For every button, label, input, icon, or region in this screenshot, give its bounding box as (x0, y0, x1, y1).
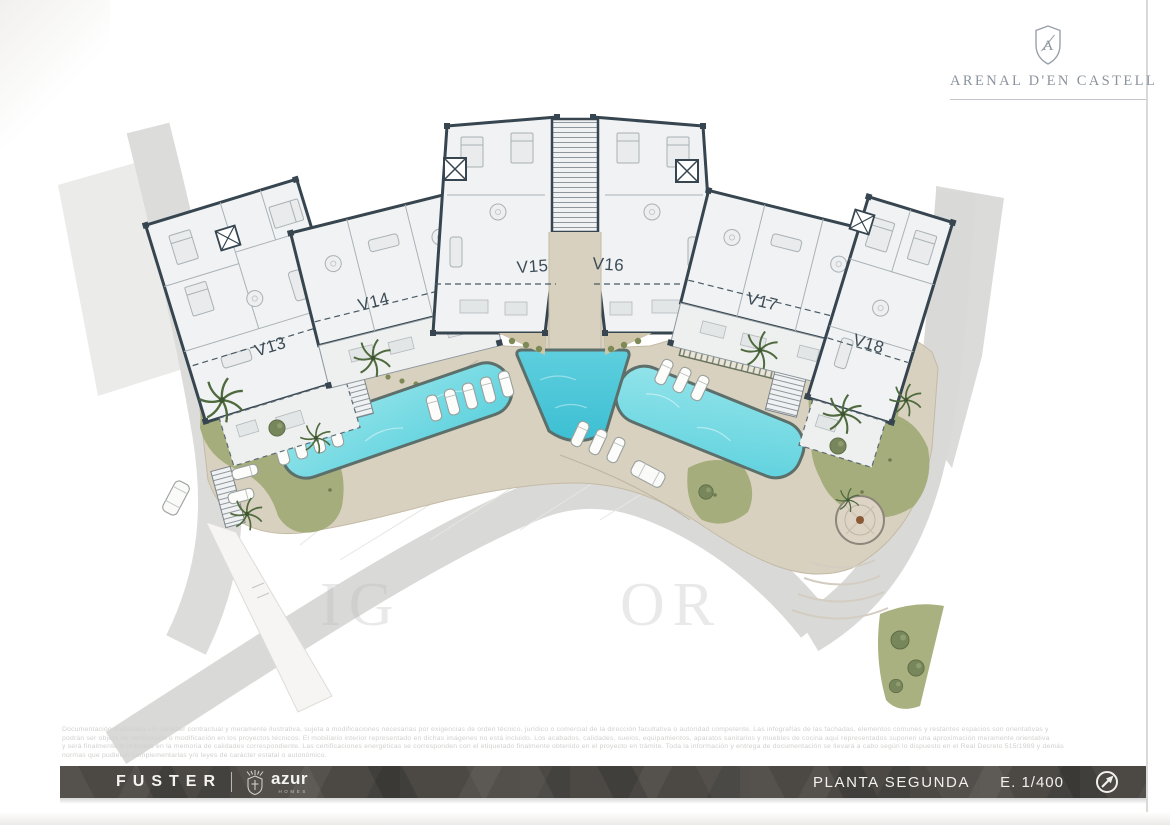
brand-shield-icon: A (1033, 24, 1063, 66)
disclaimer-line: podrán ser objeto de verificación o modi… (62, 735, 1140, 744)
brand-rule (950, 99, 1146, 100)
stair-core (552, 119, 598, 232)
circular-patio (836, 496, 884, 544)
photo-bottom-shade (0, 812, 1170, 825)
brand-monogram: A (1043, 38, 1054, 54)
azur-sub-label: HOMES (271, 789, 308, 794)
photo-edge-line (1146, 0, 1148, 812)
central-corridor (549, 232, 601, 348)
azur-wordmark: azur (271, 770, 308, 787)
unit-label-v15: V15 (516, 256, 549, 277)
brand-header: A ARENAL D'EN CASTELL (950, 24, 1146, 100)
north-compass-icon (1094, 769, 1120, 795)
title-bar: FUSTER azur HOMES PLANTA SEGUNDA E. 1/40… (60, 766, 1146, 798)
unit-label-v16: V16 (592, 254, 625, 275)
legal-disclaimer: Documentación elaborada sin carácter con… (62, 726, 1140, 761)
azur-logo: azur HOMES (245, 769, 308, 795)
footer-separator (231, 772, 232, 792)
disclaimer-line: normas que pudieran complementarlas y/o … (62, 752, 1140, 761)
plan-sheet: V13 V14 V15 V16 V17 V18 A ARENAL D'EN CA… (0, 0, 1170, 825)
site-plan: V13 V14 V15 V16 V17 V18 (0, 0, 1170, 825)
scale-label: E. 1/400 (1000, 774, 1064, 791)
bar-shadow (60, 798, 1146, 804)
developer-logo: FUSTER (116, 773, 222, 791)
disclaimer-line: Documentación elaborada sin carácter con… (62, 726, 1140, 735)
brand-name: ARENAL D'EN CASTELL (950, 73, 1146, 90)
disclaimer-line: y será finalmente lo indicado en la memo… (62, 743, 1140, 752)
azur-crest-icon (245, 769, 265, 795)
floor-plan-title: PLANTA SEGUNDA (813, 774, 970, 791)
